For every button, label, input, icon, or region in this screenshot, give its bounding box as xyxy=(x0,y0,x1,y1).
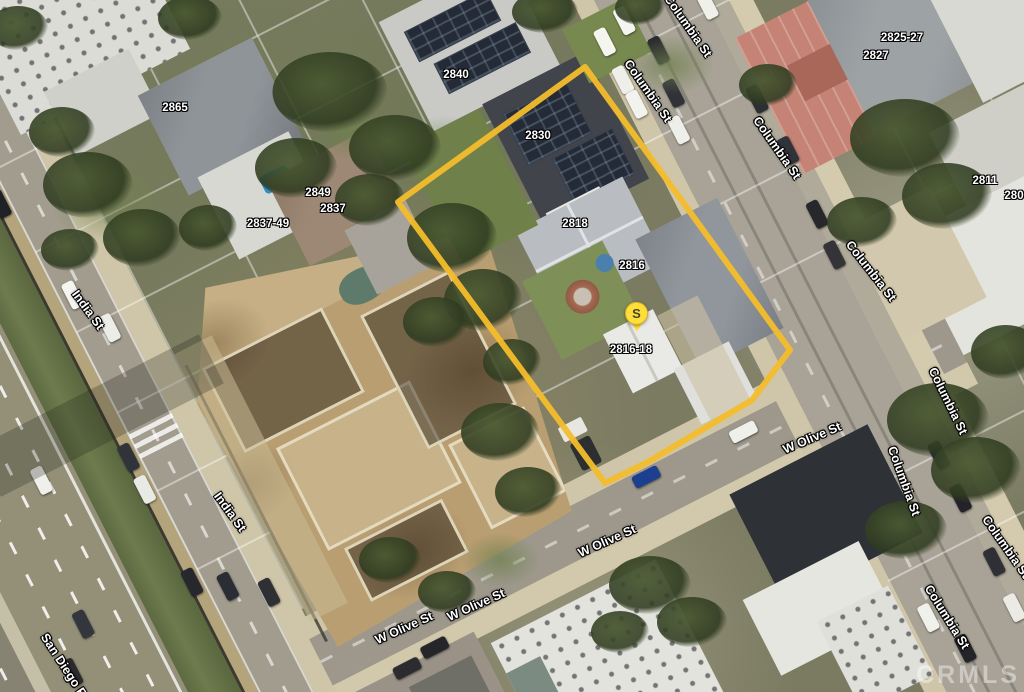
parcel-number-label: 2825-27 xyxy=(881,32,923,44)
parcel-number-label: 280 xyxy=(1004,190,1023,202)
parcel-number-label: 2837-49 xyxy=(247,218,289,230)
parcel-number-label: 2830 xyxy=(525,130,551,142)
crmls-watermark: CRMLS xyxy=(916,661,1020,690)
tree-canopy xyxy=(657,597,727,647)
parcel-number-label: 2849 xyxy=(305,187,331,199)
marker-label: S xyxy=(632,306,641,321)
parcel-number-label: 2840 xyxy=(443,69,469,81)
parcel-number-label: 2816-18 xyxy=(610,344,652,356)
tree-canopy xyxy=(461,403,539,461)
tree-canopy xyxy=(103,209,181,267)
parcel-number-label: 2816 xyxy=(619,260,645,272)
tree-canopy xyxy=(483,339,541,385)
tree-canopy xyxy=(407,203,497,273)
tree-canopy xyxy=(902,163,992,229)
tree-canopy xyxy=(591,611,649,653)
parcel-number-label: 2818 xyxy=(562,218,588,230)
tree-canopy xyxy=(495,467,561,517)
tree-canopy xyxy=(359,537,421,583)
tree-canopy xyxy=(931,437,1021,503)
parcel-number-label: 2827 xyxy=(863,50,889,62)
tree-canopy xyxy=(179,205,237,251)
parcel-number-label: 2865 xyxy=(162,102,188,114)
pin-circle: S xyxy=(625,302,648,325)
tree-canopy xyxy=(827,197,897,247)
tree-canopy xyxy=(335,174,405,226)
tree-canopy xyxy=(43,152,133,218)
tree-canopy xyxy=(41,229,99,271)
tree-canopy xyxy=(29,107,95,157)
tree-canopy xyxy=(739,64,797,106)
satellite-map[interactable]: S Columbia StColumbia StColumbia StColum… xyxy=(0,0,1024,692)
tree-canopy xyxy=(349,115,441,181)
property-marker-pin[interactable]: S xyxy=(625,302,649,334)
parcel-number-label: 2811 xyxy=(973,175,998,187)
parcel-number-label: 2837 xyxy=(320,203,346,215)
tree-canopy xyxy=(403,297,469,347)
grass-patch xyxy=(460,532,540,588)
